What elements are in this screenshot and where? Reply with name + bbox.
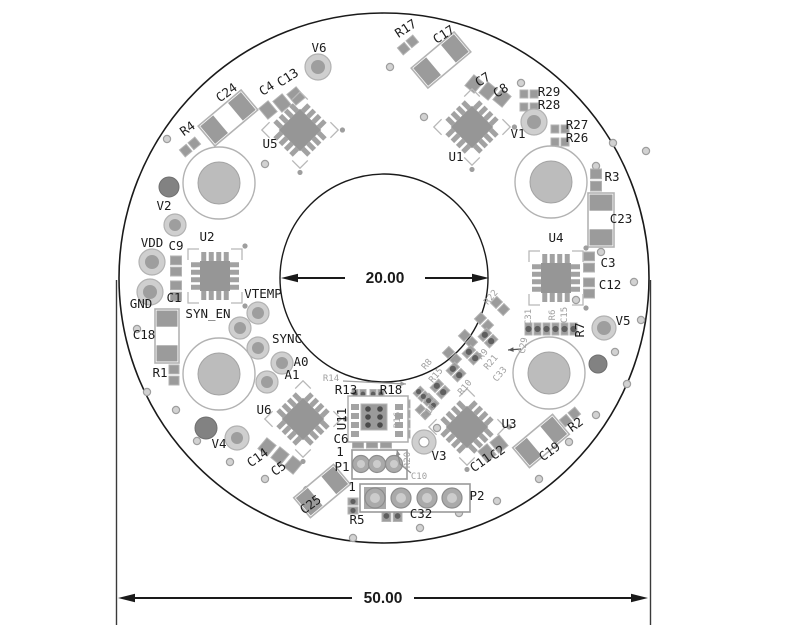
fiducial-dot: [159, 177, 179, 197]
ref-label-c31: C31: [524, 309, 534, 325]
ref-label-r1: R1: [152, 365, 167, 380]
ref-label-vdd: VDD: [141, 235, 164, 250]
ref-label-c1: C1: [166, 290, 181, 305]
component-part: [478, 328, 498, 348]
ref-label-v6: V6: [311, 40, 326, 55]
ref-label-u11: U11: [334, 408, 349, 431]
ref-label-r14: R14: [323, 374, 339, 384]
ref-label-c3: C3: [600, 255, 615, 270]
outer-diameter-value: 50.00: [364, 590, 403, 607]
component-part: [543, 323, 559, 335]
ref-label-c4: C4: [256, 78, 277, 99]
ref-label-r3: R3: [604, 169, 619, 184]
pad-vtemp: [247, 302, 269, 324]
mounting-hole: [515, 146, 587, 218]
pad-sync: [247, 337, 269, 359]
ref-label-v1: V1: [510, 126, 525, 141]
ref-label-u4: U4: [548, 230, 563, 245]
dimension-inner-diameter: 20.00: [281, 270, 489, 287]
ref-label-r20: R20: [403, 452, 413, 468]
pcb-drawing-svg: 20.0050.00V6R17C17C7C8R29R28R27R26V1U1R3…: [0, 0, 808, 641]
mounting-hole: [183, 338, 255, 410]
component-part: [584, 278, 595, 298]
component-c18: [155, 309, 179, 363]
ic-u2: [188, 243, 248, 308]
ref-label-c5: C5: [268, 458, 289, 479]
ref-label-u5: U5: [262, 136, 277, 151]
ref-label-c9: C9: [168, 238, 183, 253]
pad-v5: [592, 316, 616, 340]
ref-label-u1: U1: [448, 149, 463, 164]
component-part: [591, 169, 602, 191]
pad-vdd: [139, 249, 165, 275]
ref-label-c12: C12: [599, 277, 622, 292]
ref-label-r13: R13: [335, 382, 358, 397]
pad-v2: [164, 214, 186, 236]
pad-v6: [305, 54, 331, 80]
ref-label-u2: U2: [199, 229, 214, 244]
component-part: [171, 256, 182, 276]
component-part: [169, 365, 179, 385]
ref-label-sync: SYNC: [272, 331, 302, 346]
ref-label-v4: V4: [211, 436, 226, 451]
component-part: [520, 90, 538, 98]
ref-label-r17: R17: [392, 16, 419, 41]
ref-label-c10: C10: [411, 472, 427, 482]
ref-label-r26: R26: [566, 130, 589, 145]
pad-a1: [256, 371, 278, 393]
ref-label-r5: R5: [349, 512, 364, 527]
pcb-assembly-drawing: 20.0050.00V6R17C17C7C8R29R28R27R26V1U1R3…: [0, 0, 808, 641]
ref-label-u3: U3: [501, 416, 516, 431]
ref-label-c23: C23: [610, 211, 633, 226]
inner-diameter-value: 20.00: [366, 270, 405, 287]
ref-label-syn_en: SYN_EN: [185, 306, 230, 321]
ref-label-c33: C33: [491, 365, 509, 384]
component-part: [474, 312, 493, 331]
component-part: [446, 362, 466, 382]
ref-label-c18: C18: [133, 327, 156, 342]
ref-label-c15: C15: [560, 307, 570, 323]
ref-label-p2: P2: [469, 488, 484, 503]
ref-label-p1: P1: [334, 459, 349, 474]
ref-label-c13: C13: [274, 65, 301, 90]
ref-label-u6: U6: [256, 402, 271, 417]
fiducial-dot: [589, 355, 607, 373]
ref-label-vtemp: VTEMP: [244, 286, 282, 301]
ref-label-1: 1: [348, 479, 356, 494]
ref-label-c32: C32: [410, 506, 433, 521]
pad-v4: [225, 426, 249, 450]
mounting-hole: [183, 147, 255, 219]
pad-syn_en: [229, 317, 251, 339]
ref-label-1: 1: [336, 444, 344, 459]
ref-label-r6: R6: [548, 310, 558, 321]
ref-label-r7: R7: [572, 322, 587, 337]
ref-label-a1: A1: [284, 367, 299, 382]
ref-label-r4: R4: [177, 118, 198, 139]
ref-label-gnd: GND: [130, 296, 153, 311]
component-part: [584, 252, 595, 272]
ref-label-v3: V3: [431, 448, 446, 463]
ic-u5: [258, 88, 346, 176]
ref-label-v5: V5: [615, 313, 630, 328]
ref-label-r28: R28: [538, 97, 561, 112]
ref-label-r18: R18: [380, 382, 403, 397]
ref-label-v2: V2: [156, 198, 171, 213]
ref-label-r16: R16: [393, 412, 403, 428]
